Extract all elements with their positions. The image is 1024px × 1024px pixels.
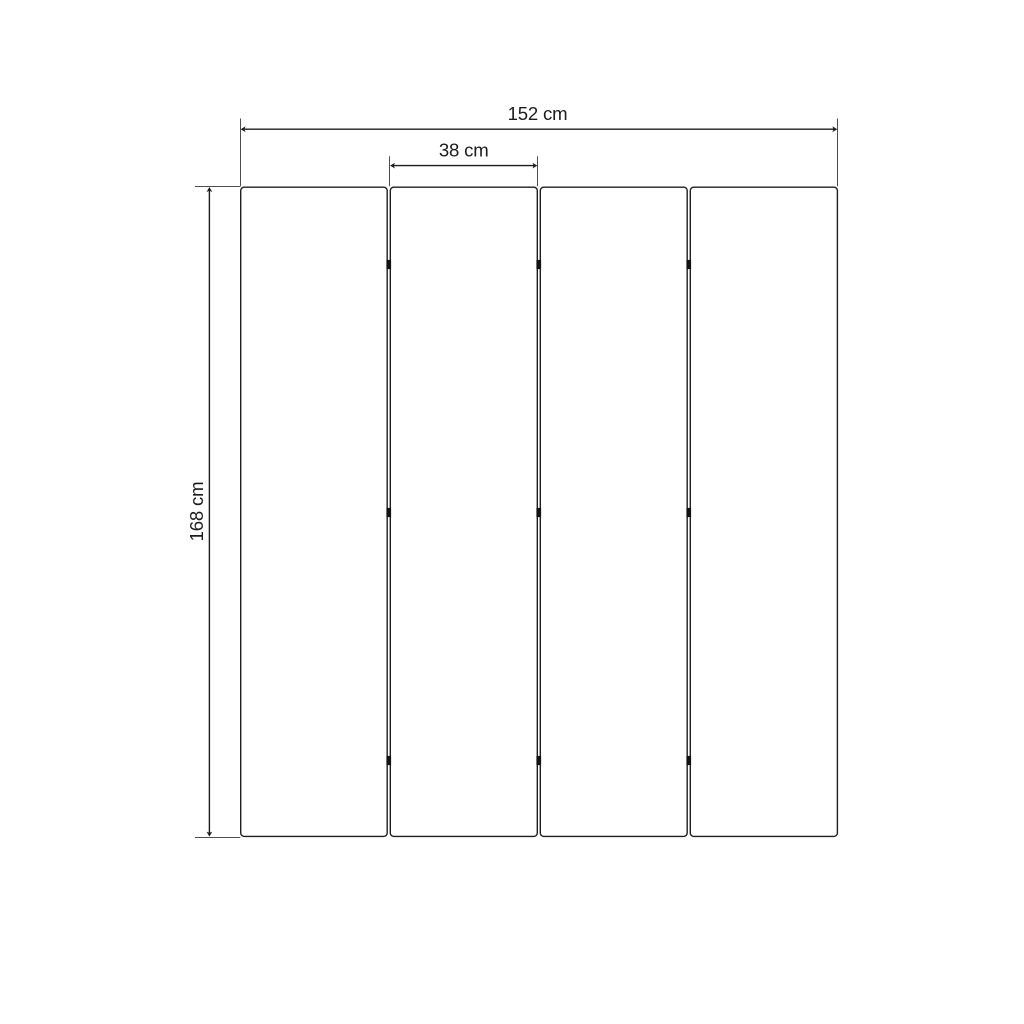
svg-text:168 cm: 168 cm [186, 482, 207, 542]
svg-text:152 cm: 152 cm [508, 103, 568, 124]
svg-text:38 cm: 38 cm [439, 139, 489, 160]
